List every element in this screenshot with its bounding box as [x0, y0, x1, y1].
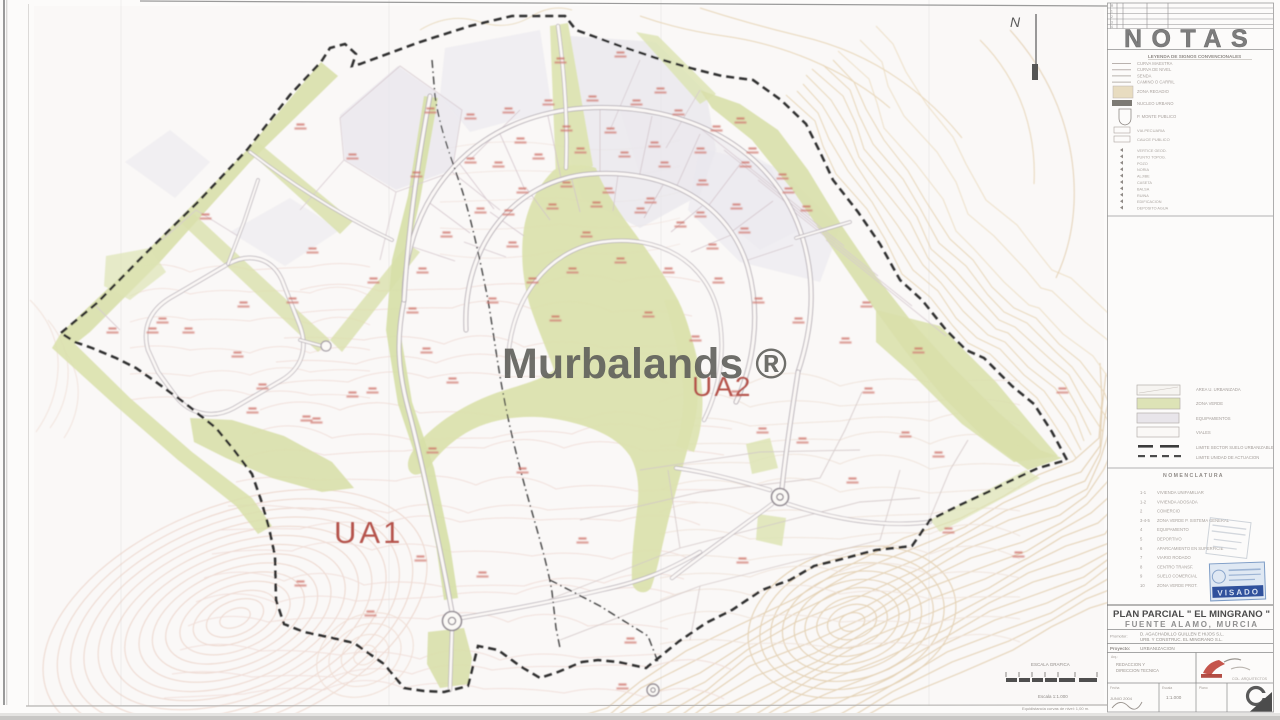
svg-text:Plano: Plano: [1199, 686, 1208, 690]
svg-text:N O M E N C L A T U R A: N O M E N C L A T U R A: [1163, 473, 1223, 479]
svg-text:VIVIENDA UNIFAMILIAR: VIVIENDA UNIFAMILIAR: [1157, 490, 1204, 495]
svg-text:1-1: 1-1: [1140, 490, 1147, 495]
svg-text:Fecha: Fecha: [1110, 686, 1120, 690]
svg-text:ESCALA GRAFICA: ESCALA GRAFICA: [1031, 662, 1070, 667]
svg-text:Murbalands ®: Murbalands ®: [502, 340, 787, 388]
svg-text:ZONA REGADIO: ZONA REGADIO: [1137, 89, 1170, 94]
svg-text:CURVA DE NIVEL: CURVA DE NIVEL: [1137, 67, 1172, 72]
svg-text:1:1.000: 1:1.000: [1166, 695, 1182, 700]
svg-text:VIA PECUARIA: VIA PECUARIA: [1137, 128, 1165, 133]
svg-text:AREA U. URBANIZADA: AREA U. URBANIZADA: [1196, 387, 1241, 392]
svg-text:BALSA: BALSA: [1137, 187, 1150, 191]
svg-text:RUINA: RUINA: [1137, 194, 1149, 198]
svg-text:CURVA MAESTRA: CURVA MAESTRA: [1137, 61, 1173, 66]
svg-text:10: 10: [1140, 583, 1145, 588]
svg-text:P. MONTE PUBLICO: P. MONTE PUBLICO: [1137, 114, 1177, 119]
svg-text:NORIA: NORIA: [1137, 168, 1149, 172]
svg-text:JUNIO 2004: JUNIO 2004: [1110, 696, 1133, 701]
svg-text:SENDA: SENDA: [1137, 73, 1152, 78]
svg-text:ZONA VERDE: ZONA VERDE: [1196, 401, 1223, 406]
svg-text:Escala: Escala: [1162, 686, 1172, 690]
svg-text:CAMINO O CARRIL: CAMINO O CARRIL: [1137, 80, 1175, 85]
svg-text:REDACCION Y: REDACCION Y: [1116, 662, 1145, 667]
svg-text:D. AGACHADILLO GUILLEN E HIJOS: D. AGACHADILLO GUILLEN E HIJOS S.L.: [1140, 632, 1224, 637]
svg-text:UA1: UA1: [334, 515, 403, 550]
svg-text:POZO: POZO: [1137, 162, 1148, 166]
svg-text:VISADO: VISADO: [1217, 587, 1260, 597]
svg-text:NUCLEO URBANO: NUCLEO URBANO: [1137, 101, 1174, 106]
svg-text:3-4-5: 3-4-5: [1140, 518, 1150, 523]
svg-text:CASETA: CASETA: [1137, 181, 1152, 185]
svg-text:EQUIPAMIENTOS: EQUIPAMIENTOS: [1196, 416, 1231, 421]
svg-text:Proyecto:: Proyecto:: [1110, 646, 1131, 651]
svg-text:VIARIO RODADO: VIARIO RODADO: [1157, 555, 1191, 560]
svg-text:DEPORTIVO: DEPORTIVO: [1157, 537, 1182, 542]
svg-text:COMERCIO: COMERCIO: [1157, 509, 1181, 514]
svg-text:URB. Y CONSTRUC. EL MINGRANO S: URB. Y CONSTRUC. EL MINGRANO S.L.: [1140, 637, 1223, 642]
svg-text:Arq.:: Arq.:: [1111, 655, 1118, 659]
svg-text:ALJIBE: ALJIBE: [1137, 175, 1150, 179]
svg-text:LIMITE UNIDAD DE ACTUACION: LIMITE UNIDAD DE ACTUACION: [1196, 455, 1259, 460]
svg-text:URBANIZACION: URBANIZACION: [1140, 646, 1175, 651]
svg-text:VIALES: VIALES: [1196, 430, 1211, 435]
svg-text:PLAN PARCIAL " EL MINGRANO ": PLAN PARCIAL " EL MINGRANO ": [1113, 609, 1270, 620]
svg-text:SUELO COMERCIAL: SUELO COMERCIAL: [1157, 574, 1198, 579]
svg-text:4: 4: [1111, 25, 1113, 29]
svg-text:2: 2: [1111, 15, 1113, 19]
svg-text:DIRECCION TECNICA: DIRECCION TECNICA: [1116, 668, 1159, 673]
svg-text:CAUCE PUBLICO: CAUCE PUBLICO: [1137, 137, 1170, 142]
svg-text:1: 1: [1111, 10, 1113, 14]
svg-text:Equidistancia curvas de nivel:: Equidistancia curvas de nivel: 1,00 m.: [1022, 706, 1089, 711]
svg-text:LEYENDA DE SIGNOS CONVENCIONAL: LEYENDA DE SIGNOS CONVENCIONALES: [1148, 54, 1241, 59]
svg-text:NOTAS: NOTAS: [1124, 25, 1257, 53]
svg-text:EQUIPAMIENTO: EQUIPAMIENTO: [1157, 527, 1189, 532]
svg-text:CENTRO TRANSF.: CENTRO TRANSF.: [1157, 564, 1193, 569]
svg-text:LIMITE SECTOR SUELO URBANIZABL: LIMITE SECTOR SUELO URBANIZABLE: [1196, 445, 1274, 450]
svg-text:EDIFICACION: EDIFICACION: [1137, 200, 1162, 204]
svg-text:PUNTO TOPOG.: PUNTO TOPOG.: [1137, 155, 1166, 159]
svg-text:DEPOSITO AGUA: DEPOSITO AGUA: [1137, 207, 1169, 211]
svg-text:ZONA VERDE PROT.: ZONA VERDE PROT.: [1157, 583, 1198, 588]
svg-text:COL. ARQUITECTOS: COL. ARQUITECTOS: [1232, 677, 1268, 681]
svg-text:N: N: [1010, 14, 1021, 30]
svg-text:Promotor:: Promotor:: [1110, 634, 1128, 639]
svg-text:Escala 1:1.000: Escala 1:1.000: [1038, 694, 1068, 699]
svg-text:VERTICE GEOD.: VERTICE GEOD.: [1137, 149, 1167, 153]
svg-text:1-2: 1-2: [1140, 499, 1147, 504]
svg-text:VIVIENDA ADOSADA: VIVIENDA ADOSADA: [1157, 499, 1198, 504]
